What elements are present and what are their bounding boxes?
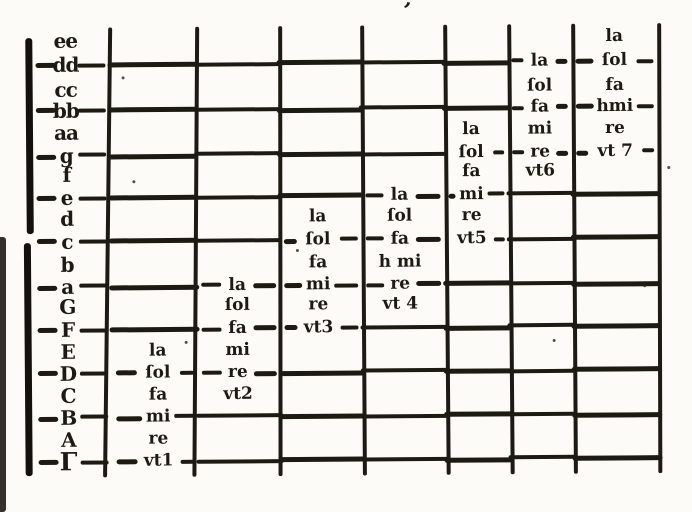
- cell-h7-g: vt 7: [597, 143, 633, 160]
- staff-line-dash: [254, 371, 277, 376]
- staff-line-dash: [276, 59, 362, 65]
- cell-h7-cc: fa: [605, 77, 623, 94]
- cell-h6-cc: ſol: [527, 77, 552, 94]
- staff-line-dash: [358, 60, 445, 65]
- ink-speck: [132, 180, 135, 183]
- staff-line-dash: [180, 460, 195, 464]
- staff-line-dash: [80, 371, 108, 375]
- cell-h5-c: vt5: [457, 230, 487, 247]
- staff-line-dash: [366, 236, 384, 240]
- staff-line-dash: [38, 370, 58, 375]
- staff-line-dash: [340, 326, 359, 330]
- staff-line-dash: [511, 58, 523, 62]
- cell-h1-gamma: vt1: [144, 452, 174, 469]
- pitch-letter-aa: aa: [54, 123, 78, 143]
- staff-line-dash: [642, 148, 654, 152]
- cell-h3-c: ſol: [305, 231, 330, 248]
- column-rule: [103, 27, 112, 477]
- cell-h1-A: re: [148, 430, 168, 447]
- staff-line-dash: [366, 283, 384, 287]
- cell-h3-F: vt3: [304, 319, 334, 336]
- pitch-letter-ee: ee: [53, 31, 77, 51]
- staff-line-dash: [441, 60, 509, 66]
- pitch-letter-D: D: [60, 364, 77, 384]
- staff-line-dash: [576, 103, 594, 108]
- staff-line-dash: [415, 193, 440, 198]
- staff-line-dash: [202, 371, 222, 375]
- staff-line-dash: [512, 106, 524, 110]
- staff-line-dash: [359, 152, 446, 157]
- staff-bracket-upper: [25, 38, 34, 234]
- staff-line-dash: [361, 368, 448, 373]
- column-rule: [571, 24, 578, 474]
- ink-speck: [667, 166, 670, 169]
- cell-h4-a: re: [390, 276, 410, 293]
- staff-line-dash: [509, 455, 577, 460]
- staff-line-dash: [110, 326, 200, 332]
- staff-line-dash: [442, 105, 510, 111]
- ink-speck: [553, 339, 556, 342]
- pitch-letter-e: e: [61, 188, 73, 208]
- staff-line-dash: [36, 107, 56, 112]
- staff-line-dash: [174, 414, 194, 418]
- staff-line-dash: [277, 107, 363, 113]
- cell-h3-d: la: [309, 208, 327, 225]
- staff-line-dash: [448, 193, 455, 198]
- ink-speck: [122, 76, 125, 79]
- staff-line-dash: [108, 153, 198, 159]
- pitch-letter-cc: cc: [54, 80, 77, 100]
- staff-line-dash: [80, 328, 108, 332]
- staff-line-dash: [512, 150, 524, 154]
- column-rule: [192, 27, 199, 477]
- cell-h2-D: re: [228, 364, 248, 381]
- staff-line-dash: [493, 150, 505, 154]
- staff-line-dash: [555, 58, 567, 63]
- pitch-letter-f: f: [62, 165, 70, 185]
- staff-line-dash: [572, 323, 662, 329]
- staff-line-dash: [339, 237, 358, 241]
- staff-line-dash: [444, 411, 512, 417]
- cell-h7-ee: la: [605, 28, 623, 45]
- staff-line-dash: [277, 192, 363, 198]
- staff-line-dash: [487, 191, 504, 195]
- staff-line-dash: [445, 457, 513, 463]
- staff-line-dash: [359, 105, 446, 110]
- cell-h1-B: mi: [146, 408, 171, 425]
- staff-line-dash: [556, 103, 568, 108]
- pitch-letter-B: B: [60, 408, 76, 428]
- staff-line-dash: [444, 368, 512, 374]
- staff-line-dash: [201, 283, 221, 287]
- staff-line-dash: [81, 460, 109, 464]
- cell-h4-d: ſol: [387, 208, 412, 225]
- cell-h4-G: vt 4: [383, 296, 419, 313]
- pitch-letter-d: d: [60, 209, 73, 229]
- staff-line-dash: [284, 282, 302, 287]
- pitch-letter-F: F: [61, 320, 74, 340]
- staff-line-dash: [79, 239, 107, 243]
- ink-speck: [643, 284, 646, 287]
- staff-line-dash: [416, 236, 441, 241]
- staff-line-dash: [39, 459, 59, 464]
- pitch-letter-dd: dd: [52, 55, 78, 75]
- staff-line-dash: [202, 328, 222, 332]
- staff-line-dash: [556, 150, 568, 155]
- staff-line-dash: [193, 62, 280, 67]
- staff-line-dash: [508, 323, 576, 328]
- cell-h3-a: mi: [306, 276, 331, 293]
- cell-h7-bb: hmi: [596, 98, 633, 115]
- staff-line-dash: [280, 456, 366, 462]
- cell-h6-f: vt6: [525, 162, 555, 179]
- staff-line-dash: [116, 370, 137, 375]
- staff-line-dash: [506, 191, 574, 196]
- cell-h5-aa: la: [462, 121, 480, 138]
- staff-line-dash: [109, 284, 199, 290]
- column-rule: [360, 25, 367, 475]
- staff-line-dash: [179, 371, 194, 375]
- staff-line-dash: [116, 416, 142, 421]
- staff-line-dash: [38, 327, 58, 332]
- staff-line-dash: [194, 107, 281, 112]
- cell-h7-dd: ſol: [602, 52, 627, 69]
- staff-line-dash: [334, 284, 358, 288]
- staff-line-dash: [78, 108, 106, 112]
- cell-h4-b: h mi: [379, 254, 422, 271]
- staff-line-dash: [279, 413, 365, 419]
- staff-line-dash: [79, 196, 107, 200]
- staff-line-dash: [362, 457, 449, 462]
- staff-line-dash: [254, 325, 277, 330]
- staff-line-dash: [36, 154, 56, 159]
- staff-line-dash: [279, 370, 365, 376]
- staff-line-dash: [573, 455, 663, 461]
- staff-line-dash: [117, 459, 138, 464]
- staff-line-dash: [77, 63, 105, 67]
- cell-h2-G: ſol: [225, 297, 250, 314]
- staff-line-dash: [365, 193, 383, 197]
- cell-h6-g: re: [530, 143, 550, 160]
- staff-line-dash: [508, 412, 576, 417]
- staff-line-dash: [36, 195, 56, 200]
- cell-h1-D: ſol: [145, 364, 170, 381]
- cell-h6-dd: la: [531, 53, 549, 70]
- staff-line-dash: [575, 58, 593, 63]
- staff-line-dash: [108, 106, 198, 112]
- cell-h5-f: fa: [462, 163, 480, 180]
- staff-line-dash: [108, 194, 198, 200]
- staff-line-dash: [508, 369, 576, 374]
- pitch-letter-bb: bb: [53, 101, 79, 121]
- cell-h2-E: mi: [225, 342, 250, 359]
- staff-line-dash: [37, 285, 57, 290]
- staff-line-dash: [443, 280, 511, 286]
- staff-line-dash: [197, 459, 284, 464]
- staff-line-dash: [253, 283, 276, 288]
- cell-h5-d: re: [462, 207, 482, 224]
- staff-line-dash: [79, 283, 107, 287]
- staff-line-dash: [572, 366, 662, 372]
- column-rule: [657, 23, 662, 473]
- staff-line-dash: [416, 280, 441, 285]
- ink-speck: [185, 341, 188, 344]
- staff-line-dash: [35, 62, 55, 67]
- pitch-letter-c: c: [61, 232, 72, 252]
- cell-h5-e: mi: [459, 186, 484, 203]
- cell-h6-aa: mi: [528, 120, 553, 137]
- pitch-letter-b: b: [60, 255, 73, 275]
- cell-h1-C: fa: [149, 387, 167, 404]
- staff-line-dash: [444, 325, 512, 331]
- staff-line-dash: [636, 104, 654, 108]
- cell-h6-bb: fa: [531, 98, 549, 115]
- staff-line-dash: [361, 325, 448, 330]
- staff-line-dash: [195, 195, 282, 200]
- staff-line-dash: [636, 59, 654, 63]
- staff-line-dash: [572, 412, 662, 418]
- cell-h3-G: re: [308, 296, 328, 313]
- staff-line-dash: [493, 237, 505, 241]
- staff-line-dash: [507, 237, 575, 242]
- cell-h1-E: la: [149, 343, 167, 360]
- column-rule: [507, 24, 515, 474]
- staff-line-dash: [284, 238, 297, 243]
- staff-line-dash: [571, 234, 661, 240]
- column-rule: [278, 26, 282, 476]
- staff-line-dash: [576, 150, 588, 155]
- pitch-letter-C: C: [61, 386, 76, 406]
- staff-line-dash: [109, 237, 199, 243]
- staff-line-dash: [107, 61, 197, 67]
- staff-line-dash: [80, 414, 108, 418]
- staff-line-dash: [507, 281, 575, 286]
- staff-line-dash: [78, 152, 106, 156]
- cell-h2-F: fa: [228, 320, 246, 337]
- staff-line-dash: [196, 413, 283, 418]
- staff-line-dash: [571, 281, 661, 287]
- staff-bracket-lower: [24, 243, 33, 476]
- staff-line-dash: [285, 324, 298, 329]
- pitch-letter-E: E: [61, 342, 75, 362]
- pitch-letter-G: G: [59, 297, 75, 317]
- staff-line-dash: [194, 151, 281, 156]
- cell-h7-aa: re: [605, 120, 625, 137]
- gamut-hexachord-diagram: eeladdlaſolccſolfabbfahmiaalamiregſolrev…: [0, 0, 692, 512]
- staff-line-dash: [277, 151, 363, 157]
- cell-h2-C: vt2: [223, 386, 253, 403]
- staff-line-dash: [195, 238, 282, 243]
- scanned-gamut-page: ’ eeladdlaſolccſolfabbfahmiaalamiregſolr…: [0, 0, 692, 512]
- pitch-letter-gamma: Γ: [60, 449, 78, 474]
- staff-line-dash: [570, 191, 660, 197]
- staff-line-dash: [37, 238, 57, 243]
- column-rule: [443, 25, 451, 475]
- cell-h5-g: ſol: [459, 144, 484, 161]
- cell-h4-c: fa: [391, 231, 409, 248]
- staff-line-dash: [38, 416, 58, 421]
- cell-h3-b: fa: [309, 254, 327, 271]
- ink-speck: [296, 249, 299, 252]
- cell-h2-a: la: [228, 277, 246, 294]
- cell-h4-e: la: [391, 187, 409, 204]
- staff-line-dash: [361, 414, 448, 419]
